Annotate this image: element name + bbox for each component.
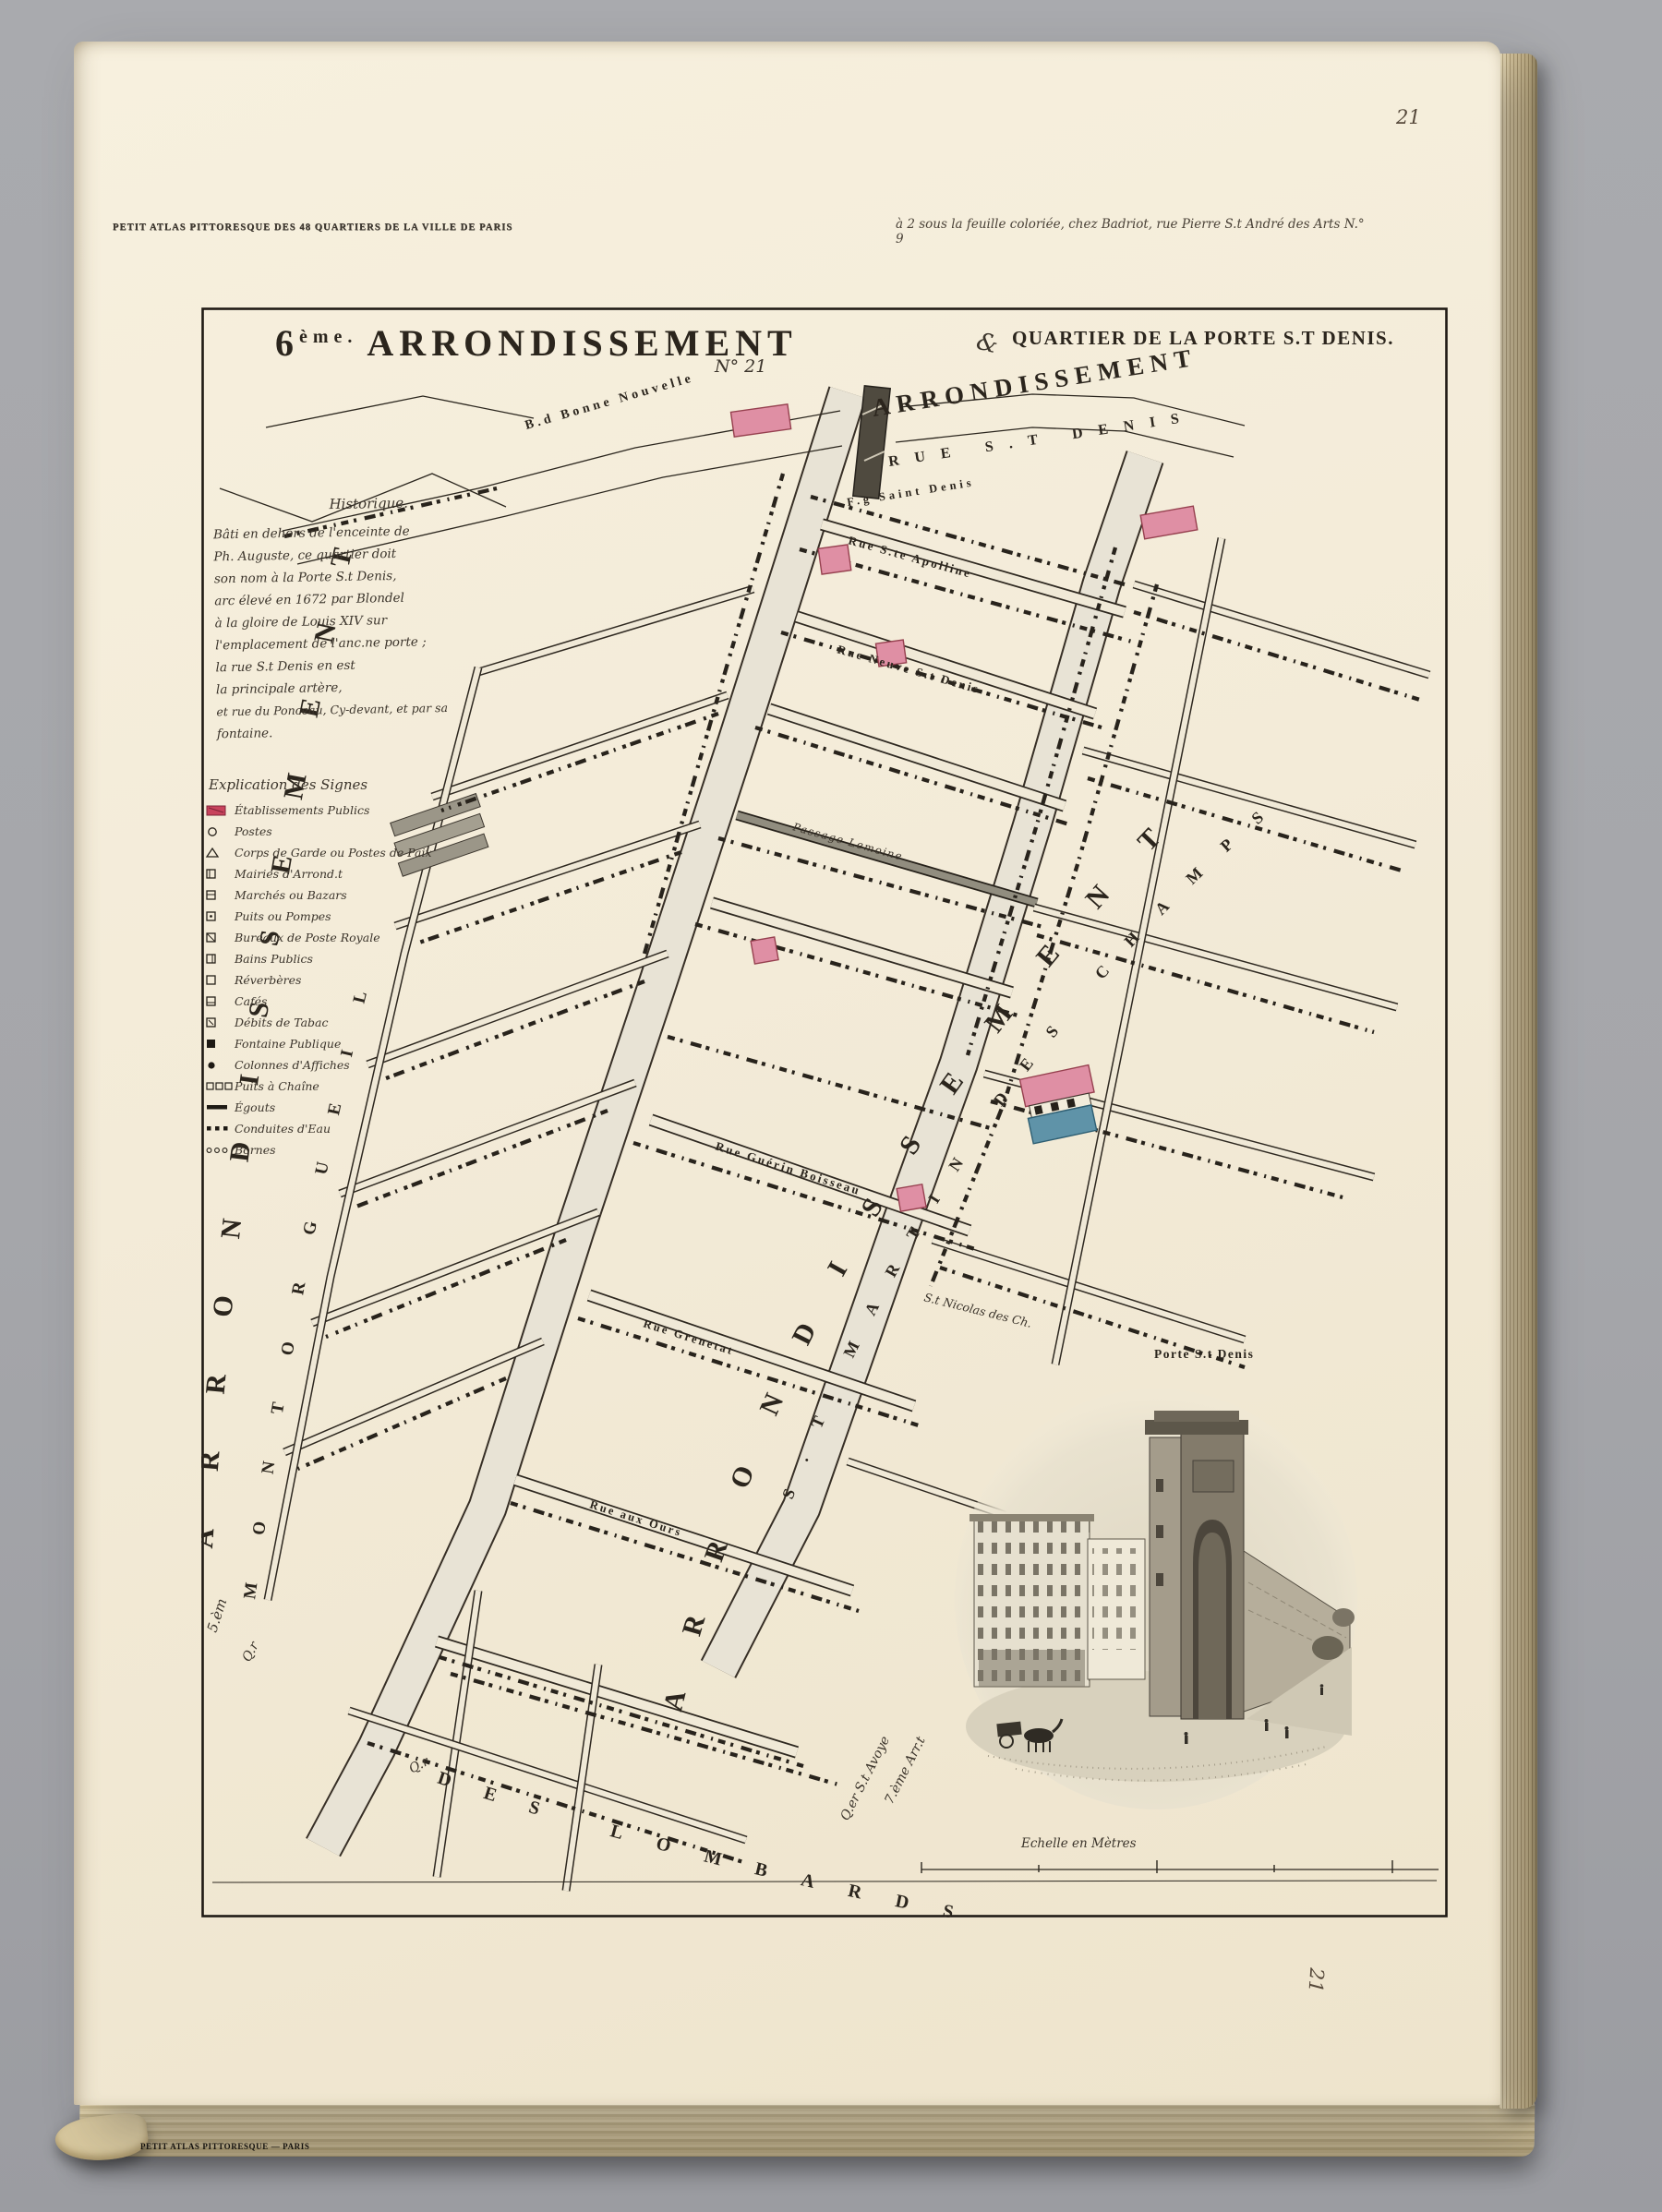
note-line: fontaine. bbox=[216, 726, 273, 741]
legend-heading: Explication des Signes bbox=[208, 776, 367, 793]
street-label-guerin-boisseau: Rue Guérin Boisseau bbox=[714, 1139, 862, 1198]
pink-building-boulevard bbox=[730, 404, 790, 437]
note-line: Bâti en dehors de l'enceinte de bbox=[212, 524, 410, 543]
legend-label: Postes bbox=[234, 824, 272, 838]
legend-symbol-dots-open bbox=[207, 1148, 227, 1153]
legend-symbol-circle bbox=[209, 828, 216, 836]
legend-label: Bains Publics bbox=[234, 952, 313, 966]
arc-left-prefix: 5.èm bbox=[204, 1596, 231, 1634]
legend-symbol-square bbox=[207, 1018, 215, 1027]
legend-symbol-triangle bbox=[207, 848, 218, 857]
historical-note: Historique. Bâti en dehors de l'enceinte… bbox=[211, 494, 448, 741]
legend-label: Réverbères bbox=[234, 973, 301, 987]
note-line: l'emplacement de l'anc.ne porte ; bbox=[215, 634, 427, 653]
legend-symbol-dots-filled bbox=[207, 1126, 228, 1131]
label-st-avoye: Q.er S.t Avoye bbox=[837, 1734, 893, 1823]
legend-symbol-square bbox=[207, 870, 215, 878]
legend-label: Cafés bbox=[235, 994, 267, 1008]
vignette-caption: Porte S.t Denis bbox=[1154, 1347, 1254, 1361]
legend-label: Débits de Tabac bbox=[234, 1016, 328, 1029]
legend-symbol-square bbox=[207, 933, 215, 942]
plate-number: N° 21 bbox=[714, 356, 766, 377]
scale-caption: Echelle en Mètres bbox=[1020, 1836, 1137, 1851]
legend-symbol-square bbox=[207, 976, 215, 984]
series-title: PETIT ATLAS PITTORESQUE DES 48 QUARTIERS… bbox=[113, 222, 556, 233]
street-label-passage-lemoine: Passage Lemoine bbox=[790, 820, 904, 863]
title-flourish: & bbox=[973, 328, 1001, 360]
title-arrondissement-number: 6 bbox=[275, 322, 299, 364]
porte-st-denis-engraving bbox=[955, 1389, 1357, 1809]
market-block bbox=[385, 794, 494, 877]
st-nicolas-church-block bbox=[1019, 1065, 1102, 1144]
legend-label: Établissements Publics bbox=[234, 803, 369, 817]
quartier-title: QUARTIER DE LA PORTE S.T DENIS. bbox=[1012, 327, 1394, 349]
legend-label: Marchés ou Bazars bbox=[234, 888, 347, 902]
note-line: son nom à la Porte S.t Denis, bbox=[214, 569, 397, 586]
legend-label: Corps de Garde ou Postes de Paix bbox=[235, 846, 432, 860]
legend-symbol-square bbox=[207, 891, 215, 899]
north-arrondissement-label: ARRONDISSEMENT bbox=[870, 343, 1198, 422]
legend-label: Bornes bbox=[234, 1143, 276, 1157]
arc-bottom-quarter-prefix: Q.r bbox=[406, 1753, 432, 1776]
legend-label: Conduites d'Eau bbox=[235, 1122, 331, 1136]
screenshot-root: { "page": { "folio_top": "21", "folio_si… bbox=[0, 0, 1662, 2212]
pink-building-east bbox=[1140, 506, 1198, 539]
legend-label: Bureaux de Poste Royale bbox=[234, 931, 380, 944]
imprint-note: à 2 sous la feuille coloriée, chez Badri… bbox=[896, 217, 1376, 246]
church-label: S.t Nicolas des Ch. bbox=[922, 1290, 1033, 1330]
book-right-page-stack bbox=[1499, 54, 1537, 2109]
legend-label: Puits à Chaîne bbox=[234, 1079, 319, 1093]
legend-symbol-square-filled bbox=[207, 1040, 215, 1048]
note-line: et rue du Ponceau, Cy-devant, et par sa bbox=[216, 701, 448, 718]
boulevard-label: B.d Bonne Nouvelle bbox=[524, 371, 696, 433]
note-line: la principale artère, bbox=[216, 680, 343, 697]
legend-label: Fontaine Publique bbox=[234, 1037, 341, 1051]
book-corner-curl bbox=[53, 2110, 150, 2166]
pink-building-apolline bbox=[818, 545, 851, 574]
legend-symbol-square bbox=[207, 955, 215, 963]
folio-number-side: 21 bbox=[1304, 1967, 1328, 1993]
legend-label: Égouts bbox=[234, 1100, 275, 1114]
legend-symbol-circle-filled bbox=[208, 1062, 214, 1068]
folio-number-top: 21 bbox=[1396, 106, 1421, 128]
title-ordinal: ème. bbox=[299, 327, 357, 347]
legend-label: Puits ou Pompes bbox=[234, 909, 331, 923]
plate-stamp: PETIT ATLAS PITTORESQUE — PARIS bbox=[140, 2142, 309, 2151]
legend-symbol-squares-3 bbox=[207, 1083, 232, 1089]
note-line: arc élevé en 1672 par Blondel bbox=[214, 591, 404, 609]
legend-label: Mairies d'Arrond.t bbox=[234, 867, 343, 881]
pink-building-mid bbox=[751, 937, 778, 964]
map-plate: 6ème.ARRONDISSEMENT & QUARTIER DE LA POR… bbox=[201, 307, 1448, 1917]
legend-label: Colonnes d'Affiches bbox=[235, 1058, 350, 1072]
arc-left-quarter-prefix: Q.r bbox=[239, 1639, 262, 1665]
note-line: la rue S.t Denis en est bbox=[215, 658, 355, 676]
legend-symbol-swatch-red bbox=[207, 806, 225, 815]
street-label-aux-ours: Rue aux Ours bbox=[588, 1498, 684, 1540]
note-line: à la gloire de Louis XIV sur bbox=[215, 613, 389, 631]
legend-symbol-square bbox=[207, 997, 215, 1005]
legend-symbol-square bbox=[207, 912, 215, 920]
note-line: Ph. Auguste, ce quartier doit bbox=[212, 547, 397, 564]
atlas-page: PETIT ATLAS PITTORESQUE DES 48 QUARTIERS… bbox=[74, 42, 1500, 2105]
legend-symbol-line-thick bbox=[207, 1105, 227, 1110]
note-heading: Historique. bbox=[328, 495, 408, 513]
